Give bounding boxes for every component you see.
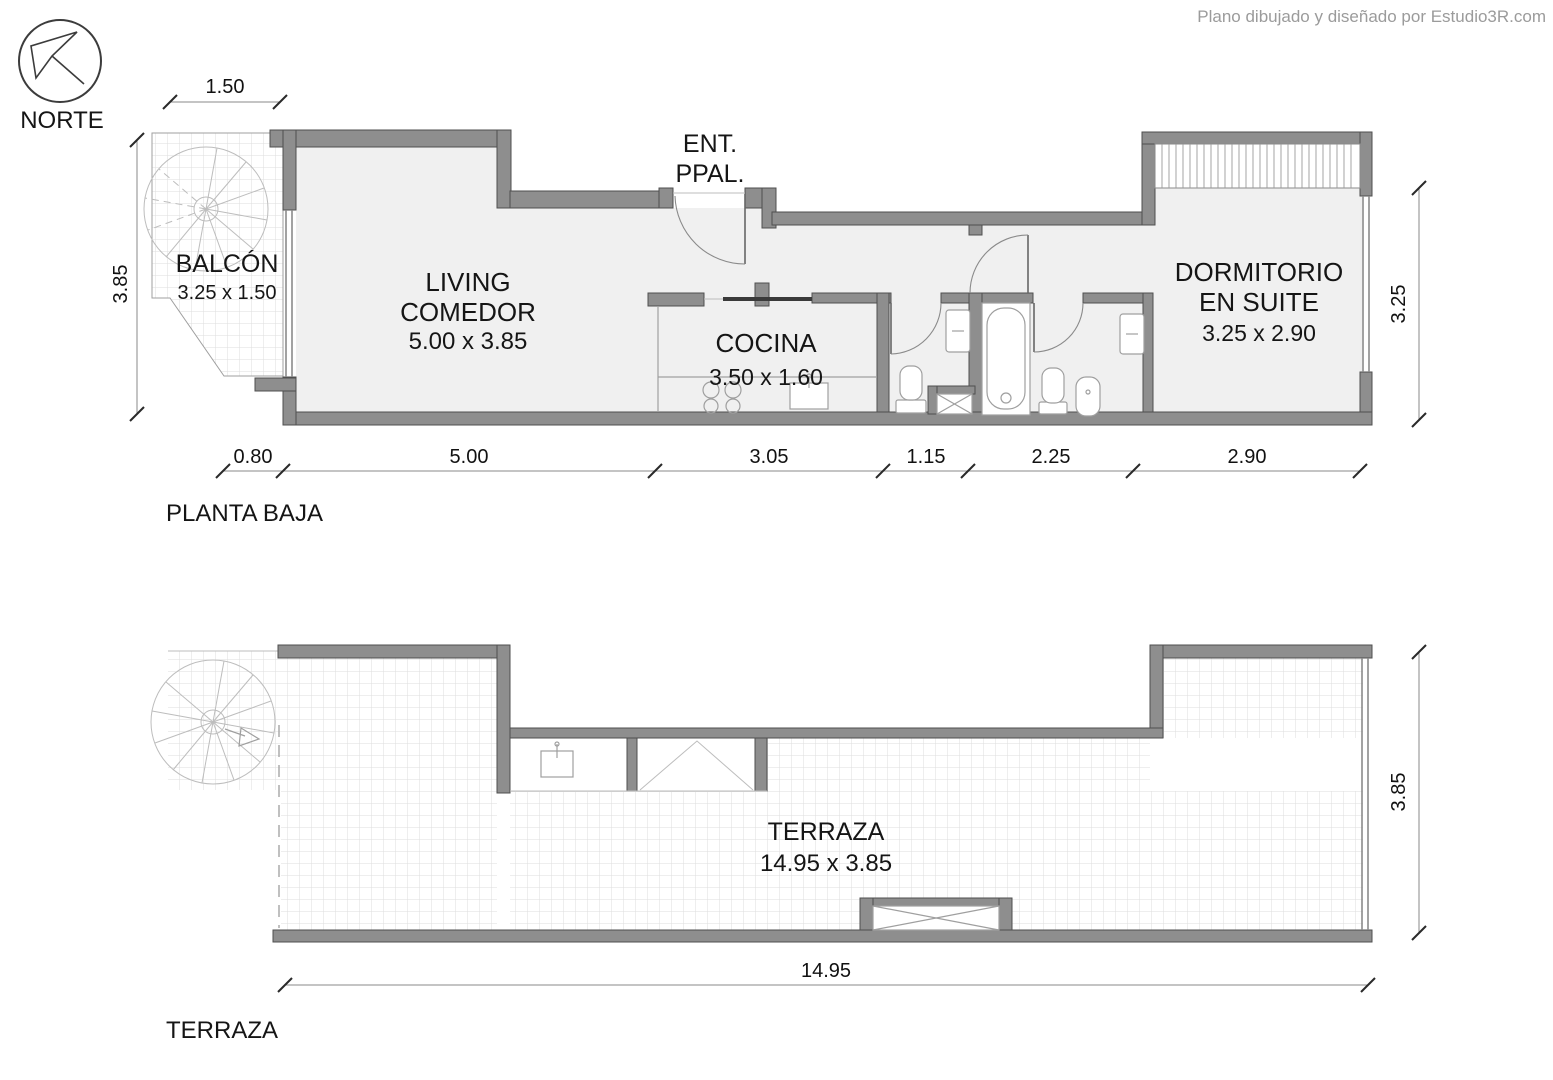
floor-plan-canvas: Plano dibujado y diseñado por Estudio3R.…: [0, 0, 1553, 1080]
bathroom-sink: [1120, 314, 1144, 354]
room-label-cocina: COCINA: [715, 328, 817, 358]
plan-title-terraza: TERRAZA: [166, 1017, 278, 1044]
bidet: [1076, 377, 1100, 416]
terrace-tiles-mid: [767, 738, 1150, 791]
svg-text:2.90: 2.90: [1228, 446, 1267, 468]
north-label: NORTE: [20, 107, 104, 134]
room-label-entrada-2: PPAL.: [675, 160, 744, 188]
toilette-wc: [896, 366, 926, 413]
north-circle-icon: [19, 20, 101, 102]
bedroom-window: [1363, 196, 1369, 372]
room-label-terraza: TERRAZA: [768, 818, 885, 846]
terraza-plan: TERRAZA 14.95 x 3.85 14.95 3.85 TERRAZA: [151, 645, 1426, 1044]
room-size-dormitorio: 3.25 x 2.90: [1202, 320, 1316, 346]
svg-text:1.50: 1.50: [206, 76, 245, 98]
dim-bottom-terraza: 14.95: [278, 960, 1375, 992]
bathroom-wc: [1039, 368, 1067, 414]
plan-title-planta-baja: PLANTA BAJA: [166, 500, 323, 527]
svg-text:0.80: 0.80: [234, 446, 273, 468]
room-label-balcon: BALCÓN: [176, 249, 279, 278]
room-size-living: 5.00 x 3.85: [409, 328, 528, 355]
north-indicator: NORTE: [19, 20, 104, 134]
svg-text:1.15: 1.15: [907, 446, 946, 468]
svg-text:5.00: 5.00: [450, 446, 489, 468]
terrace-tiles-left: [281, 658, 497, 930]
watermark-text: Plano dibujado y diseñado por Estudio3R.…: [1197, 7, 1546, 26]
room-label-entrada-1: ENT.: [683, 130, 737, 158]
room-label-living-2: COMEDOR: [400, 297, 536, 327]
dim-bottom-pb: 0.80 5.00 3.05 1.15 2.25 2.90: [216, 446, 1367, 478]
terrace-tiles-right: [1163, 658, 1363, 738]
svg-text:3.05: 3.05: [750, 446, 789, 468]
shaft: [937, 394, 972, 414]
living-balcony-window: [286, 210, 292, 377]
planta-baja-plan: BALCÓN 3.25 x 1.50 LIVING COMEDOR 5.00 x…: [110, 76, 1426, 527]
terrace-niche: [510, 741, 767, 791]
svg-text:14.95: 14.95: [801, 960, 851, 982]
terrace-skylight: [640, 741, 753, 790]
terrace-vent-box: [860, 898, 1012, 930]
room-label-dormitorio-2: EN SUITE: [1199, 287, 1319, 317]
floor-plan-page: Plano dibujado y diseñado por Estudio3R.…: [0, 0, 1553, 1080]
svg-text:3.25: 3.25: [1388, 285, 1410, 324]
toilette-sink: [946, 310, 970, 352]
bathtub: [982, 303, 1030, 415]
room-size-terraza: 14.95 x 3.85: [760, 850, 892, 877]
room-size-balcon: 3.25 x 1.50: [178, 282, 277, 304]
room-label-dormitorio-1: DORMITORIO: [1175, 257, 1344, 287]
dim-top-balcony: 1.50: [163, 76, 287, 109]
svg-text:3.85: 3.85: [110, 265, 132, 304]
room-size-cocina: 3.50 x 1.60: [709, 364, 823, 390]
room-label-living-1: LIVING: [425, 267, 510, 297]
svg-text:2.25: 2.25: [1032, 446, 1071, 468]
dim-right-pb: 3.25: [1388, 181, 1426, 427]
bedroom-closet-hatch: [1155, 144, 1360, 188]
dim-right-terraza: 3.85: [1388, 645, 1426, 940]
svg-text:3.85: 3.85: [1388, 773, 1410, 812]
dim-left-pb: 3.85: [110, 133, 144, 421]
